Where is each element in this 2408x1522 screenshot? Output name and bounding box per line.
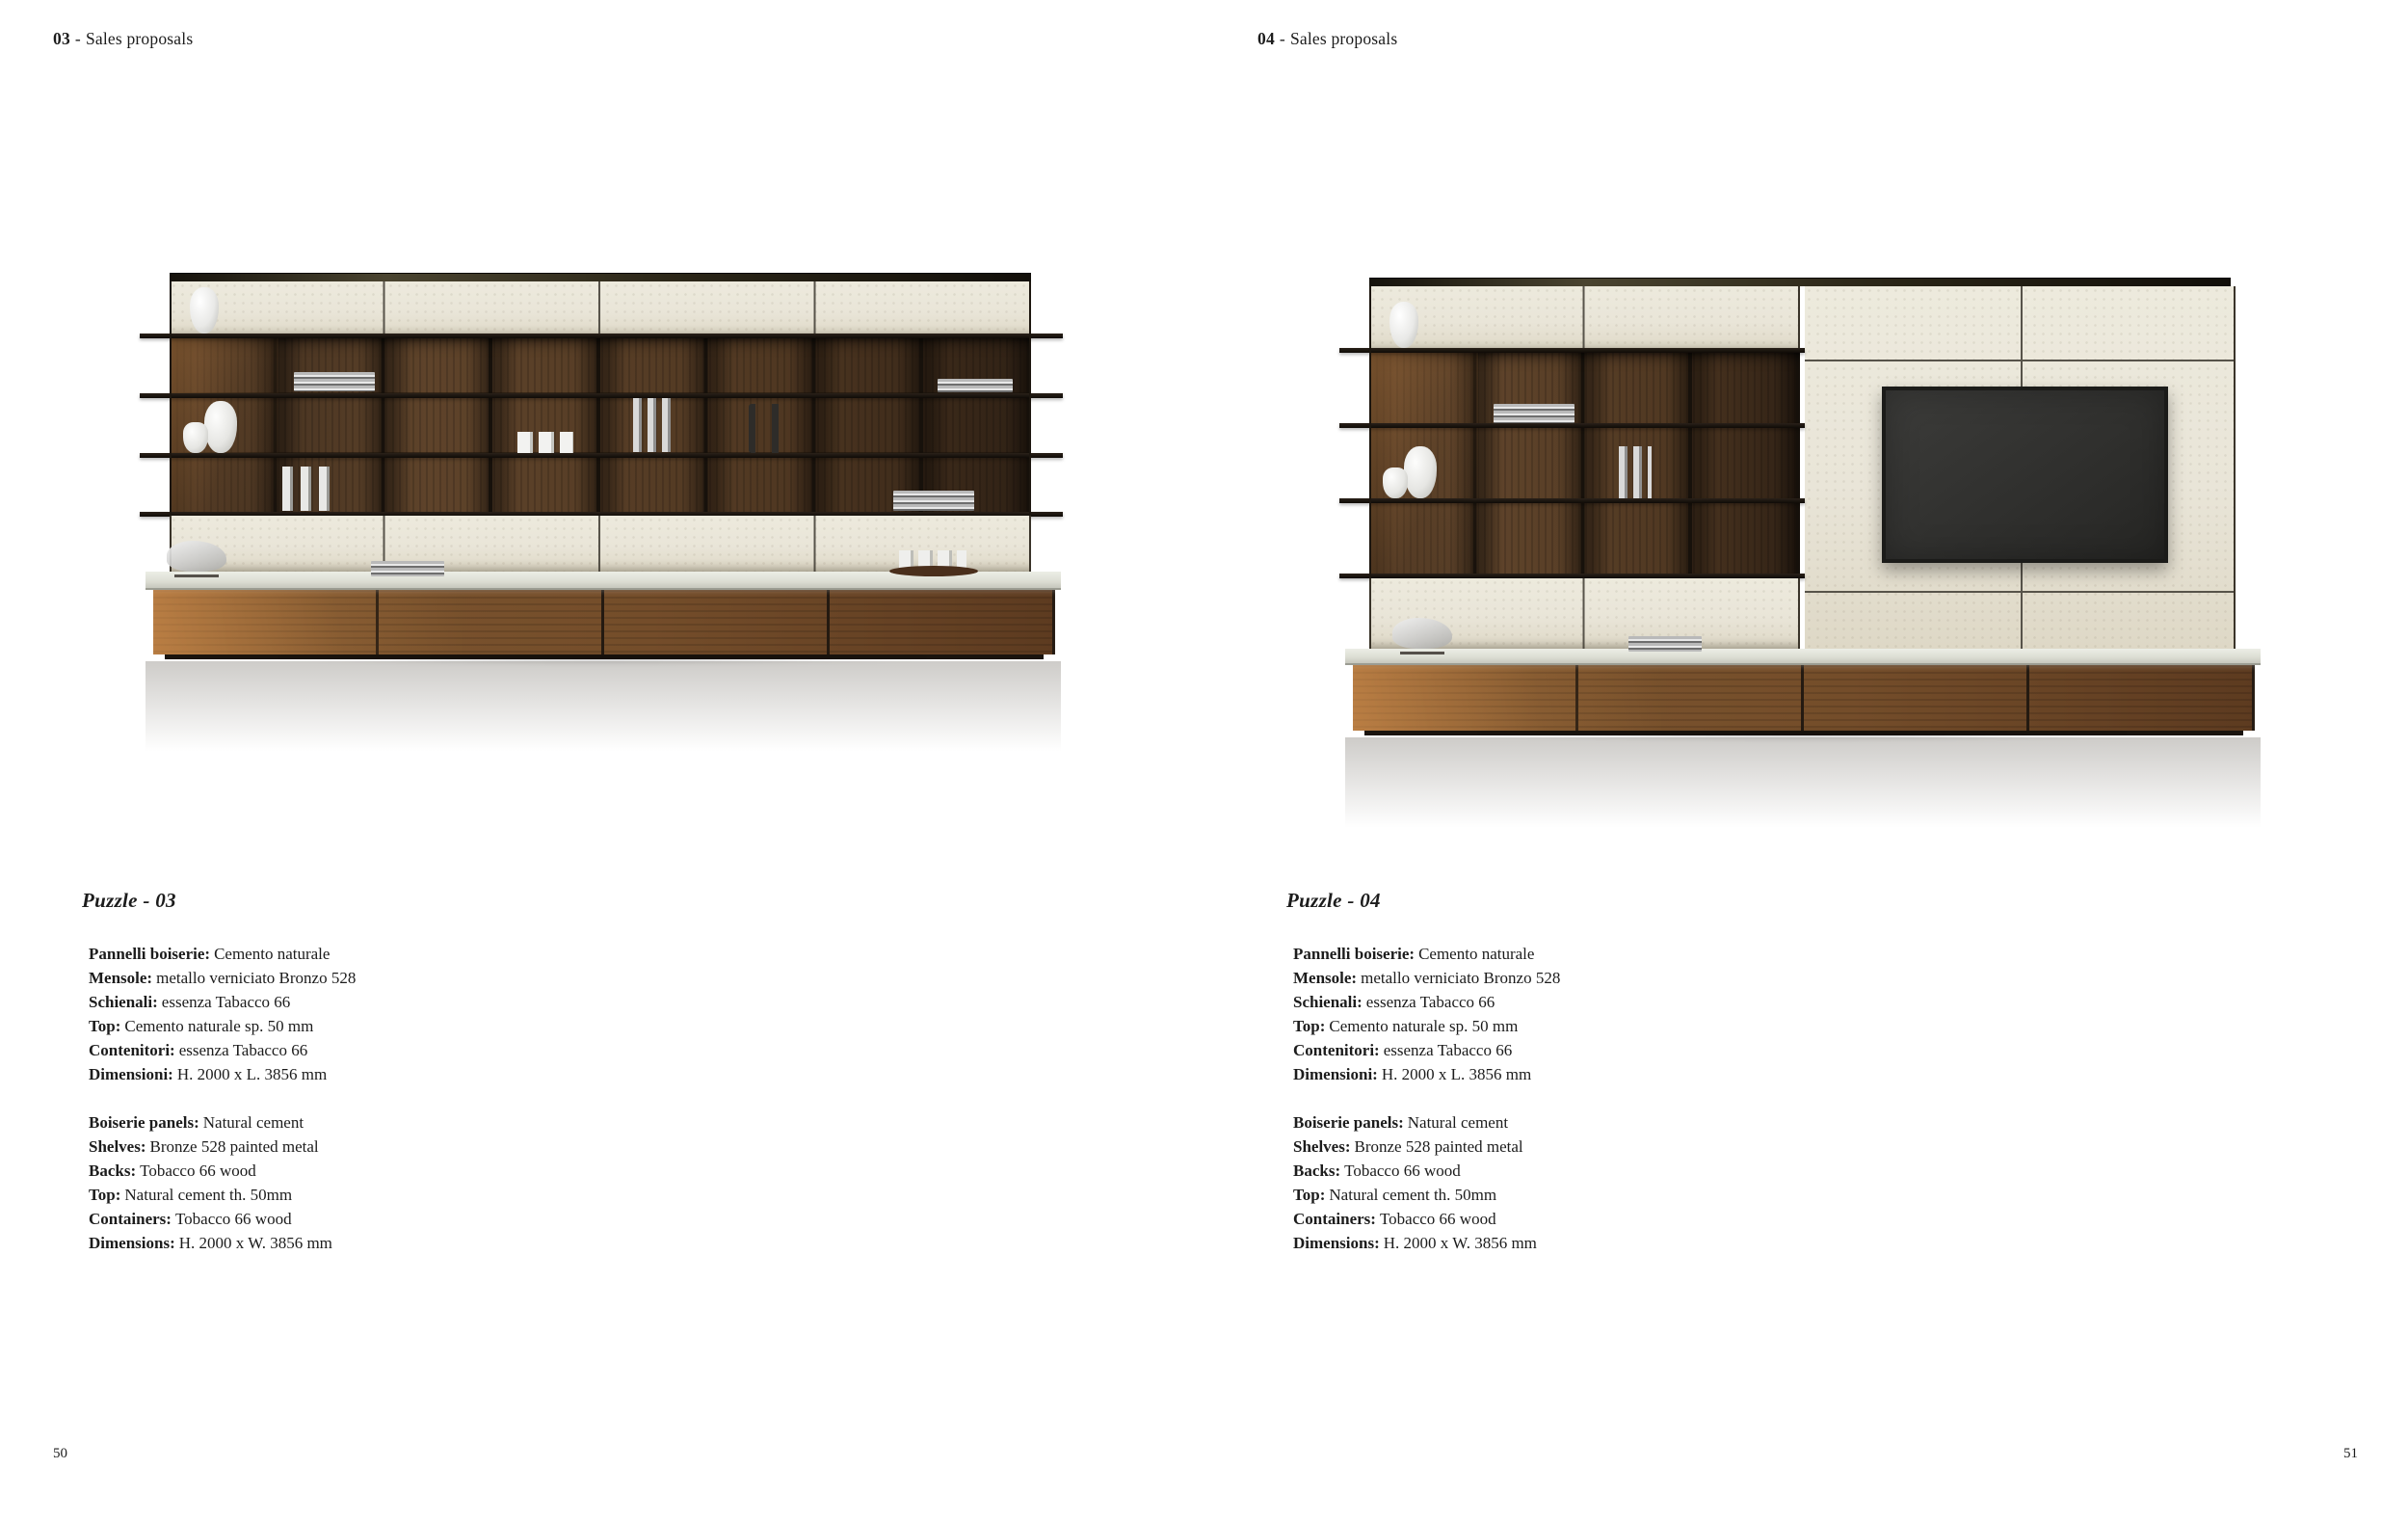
books-decor <box>938 379 1013 392</box>
spec-label: Dimensions: <box>1293 1234 1380 1252</box>
floor-reflection <box>1345 737 2261 853</box>
metal-shelf <box>140 453 1063 458</box>
spec-line: Boiserie panels:Natural cement <box>89 1110 583 1135</box>
spec-label: Containers: <box>1293 1210 1376 1228</box>
base-cabinet <box>153 590 1055 654</box>
countertop <box>1345 649 2261 665</box>
specs-english: Boiserie panels:Natural cementShelves:Br… <box>89 1110 583 1255</box>
spec-label: Top: <box>89 1017 120 1035</box>
spec-value: metallo verniciato Bronzo 528 <box>156 969 356 987</box>
catalog-page-right: 04-Sales proposals Puzzle - 04 Pannelli … <box>1204 0 2408 1522</box>
figurines-decor <box>749 404 785 453</box>
upper-boiserie-panels <box>1369 286 1800 352</box>
unit-top-strip <box>1369 278 2231 286</box>
spec-value: Bronze 528 painted metal <box>150 1137 319 1156</box>
spec-label: Boiserie panels: <box>89 1113 199 1132</box>
spec-label: Backs: <box>89 1162 136 1180</box>
spec-line: Schienali:essenza Tabacco 66 <box>1293 990 1787 1014</box>
spec-value: H. 2000 x W. 3856 mm <box>179 1234 332 1252</box>
spec-line: Containers:Tobacco 66 wood <box>89 1207 583 1231</box>
spec-value: Cemento naturale sp. 50 mm <box>124 1017 313 1035</box>
spec-label: Top: <box>1293 1186 1325 1204</box>
spec-line: Mensole:metallo verniciato Bronzo 528 <box>89 966 583 990</box>
page-header: 04-Sales proposals <box>1257 29 1397 49</box>
books-decor <box>371 561 444 576</box>
spec-line: Top:Cemento naturale sp. 50 mm <box>1293 1014 1787 1038</box>
metal-shelf <box>1339 498 1805 503</box>
catalog-page-left: 03-Sales proposals Puzzle - 03 <box>0 0 1204 1522</box>
spec-line: Containers:Tobacco 66 wood <box>1293 1207 1787 1231</box>
spec-line: Shelves:Bronze 528 painted metal <box>1293 1135 1787 1159</box>
spec-label: Pannelli boiserie: <box>1293 945 1415 963</box>
candles-decor <box>282 467 332 511</box>
spec-value: H. 2000 x L. 3856 mm <box>1382 1065 1531 1083</box>
spec-line: Dimensioni:H. 2000 x L. 3856 mm <box>89 1062 583 1086</box>
page-number: 50 <box>53 1446 67 1462</box>
product-title: Puzzle - 04 <box>1286 889 1787 913</box>
unit-top-strip <box>170 273 1031 281</box>
cups-decor <box>517 432 573 453</box>
spec-value: H. 2000 x L. 3856 mm <box>177 1065 327 1083</box>
spec-value: Cemento naturale <box>214 945 330 963</box>
specs-english: Boiserie panels:Natural cementShelves:Br… <box>1293 1110 1787 1255</box>
spec-line: Top:Natural cement th. 50mm <box>1293 1183 1787 1207</box>
header-separator: - <box>1280 29 1285 48</box>
spec-value: Tobacco 66 wood <box>175 1210 292 1228</box>
spec-label: Schienali: <box>1293 993 1363 1011</box>
spec-line: Top:Cemento naturale sp. 50 mm <box>89 1014 583 1038</box>
header-section-number: 04 <box>1257 29 1275 48</box>
spec-value: essenza Tabacco 66 <box>1366 993 1495 1011</box>
spec-label: Backs: <box>1293 1162 1340 1180</box>
base-cabinet <box>1353 665 2255 731</box>
spec-line: Dimensions:H. 2000 x W. 3856 mm <box>89 1231 583 1255</box>
books-decor <box>1628 636 1702 652</box>
spec-value: Tobacco 66 wood <box>140 1162 256 1180</box>
metal-shelf <box>140 393 1063 398</box>
page-header: 03-Sales proposals <box>53 29 193 49</box>
spec-line: Contenitori:essenza Tabacco 66 <box>89 1038 583 1062</box>
spec-label: Top: <box>1293 1017 1325 1035</box>
header-label: Sales proposals <box>86 29 193 48</box>
spec-label: Pannelli boiserie: <box>89 945 210 963</box>
spec-value: Natural cement th. 50mm <box>124 1186 292 1204</box>
product-info: Puzzle - 03 Pannelli boiserie:Cemento na… <box>82 889 583 1255</box>
spec-label: Dimensioni: <box>1293 1065 1378 1083</box>
spec-value: essenza Tabacco 66 <box>1384 1041 1513 1059</box>
spec-label: Dimensions: <box>89 1234 175 1252</box>
spec-line: Schienali:essenza Tabacco 66 <box>89 990 583 1014</box>
vases-decor <box>1383 446 1450 498</box>
product-info: Puzzle - 04 Pannelli boiserie:Cemento na… <box>1286 889 1787 1255</box>
spec-line: Contenitori:essenza Tabacco 66 <box>1293 1038 1787 1062</box>
frame-post-right <box>1029 281 1031 516</box>
bottles-decor <box>1619 446 1652 498</box>
spec-value: essenza Tabacco 66 <box>162 993 291 1011</box>
bottles-decor <box>633 398 675 452</box>
spec-label: Mensole: <box>89 969 152 987</box>
page-number: 51 <box>2343 1446 2358 1462</box>
wall-unit-photo-puzzle-03 <box>140 273 1065 659</box>
spec-value: H. 2000 x W. 3856 mm <box>1384 1234 1537 1252</box>
books-decor <box>1494 404 1574 423</box>
spec-line: Dimensioni:H. 2000 x L. 3856 mm <box>1293 1062 1787 1086</box>
spec-value: Tobacco 66 wood <box>1344 1162 1461 1180</box>
spec-line: Top:Natural cement th. 50mm <box>89 1183 583 1207</box>
spec-value: Cemento naturale sp. 50 mm <box>1329 1017 1518 1035</box>
spec-label: Contenitori: <box>89 1041 175 1059</box>
spec-label: Containers: <box>89 1210 172 1228</box>
specs-italian: Pannelli boiserie:Cemento naturaleMensol… <box>1293 942 1787 1086</box>
spec-line: Mensole:metallo verniciato Bronzo 528 <box>1293 966 1787 990</box>
books-decor <box>294 372 375 391</box>
spec-value: Natural cement <box>203 1113 304 1132</box>
spec-line: Backs:Tobacco 66 wood <box>1293 1159 1787 1183</box>
upper-boiserie-panels <box>170 281 1031 337</box>
spec-label: Schienali: <box>89 993 158 1011</box>
specs-italian: Pannelli boiserie:Cemento naturaleMensol… <box>89 942 583 1086</box>
metal-shelf <box>1339 348 1805 353</box>
floor-reflection <box>146 661 1061 777</box>
header-section-number: 03 <box>53 29 70 48</box>
spec-label: Shelves: <box>1293 1137 1351 1156</box>
spec-value: Natural cement <box>1408 1113 1508 1132</box>
product-title: Puzzle - 03 <box>82 889 583 913</box>
spec-value: essenza Tabacco 66 <box>179 1041 308 1059</box>
spec-value: Bronze 528 painted metal <box>1355 1137 1523 1156</box>
spec-line: Shelves:Bronze 528 painted metal <box>89 1135 583 1159</box>
spec-label: Contenitori: <box>1293 1041 1380 1059</box>
tray-decor <box>889 550 978 577</box>
header-label: Sales proposals <box>1290 29 1397 48</box>
header-separator: - <box>75 29 81 48</box>
spec-line: Dimensions:H. 2000 x W. 3856 mm <box>1293 1231 1787 1255</box>
metal-shelf <box>1339 423 1805 428</box>
wall-unit-photo-puzzle-04 <box>1339 278 2264 734</box>
metal-shelf <box>140 334 1063 338</box>
books-decor <box>893 491 974 511</box>
spec-label: Dimensioni: <box>89 1065 173 1083</box>
tv-screen <box>1882 387 2168 563</box>
spec-label: Boiserie panels: <box>1293 1113 1404 1132</box>
spec-value: Natural cement th. 50mm <box>1329 1186 1496 1204</box>
spec-label: Top: <box>89 1186 120 1204</box>
vases-decor <box>183 401 251 453</box>
spec-line: Backs:Tobacco 66 wood <box>89 1159 583 1183</box>
spec-line: Pannelli boiserie:Cemento naturale <box>1293 942 1787 966</box>
spec-label: Shelves: <box>89 1137 146 1156</box>
spec-value: metallo verniciato Bronzo 528 <box>1361 969 1560 987</box>
spec-line: Boiserie panels:Natural cement <box>1293 1110 1787 1135</box>
spec-label: Mensole: <box>1293 969 1357 987</box>
spec-line: Pannelli boiserie:Cemento naturale <box>89 942 583 966</box>
spec-value: Cemento naturale <box>1418 945 1534 963</box>
spec-value: Tobacco 66 wood <box>1380 1210 1496 1228</box>
